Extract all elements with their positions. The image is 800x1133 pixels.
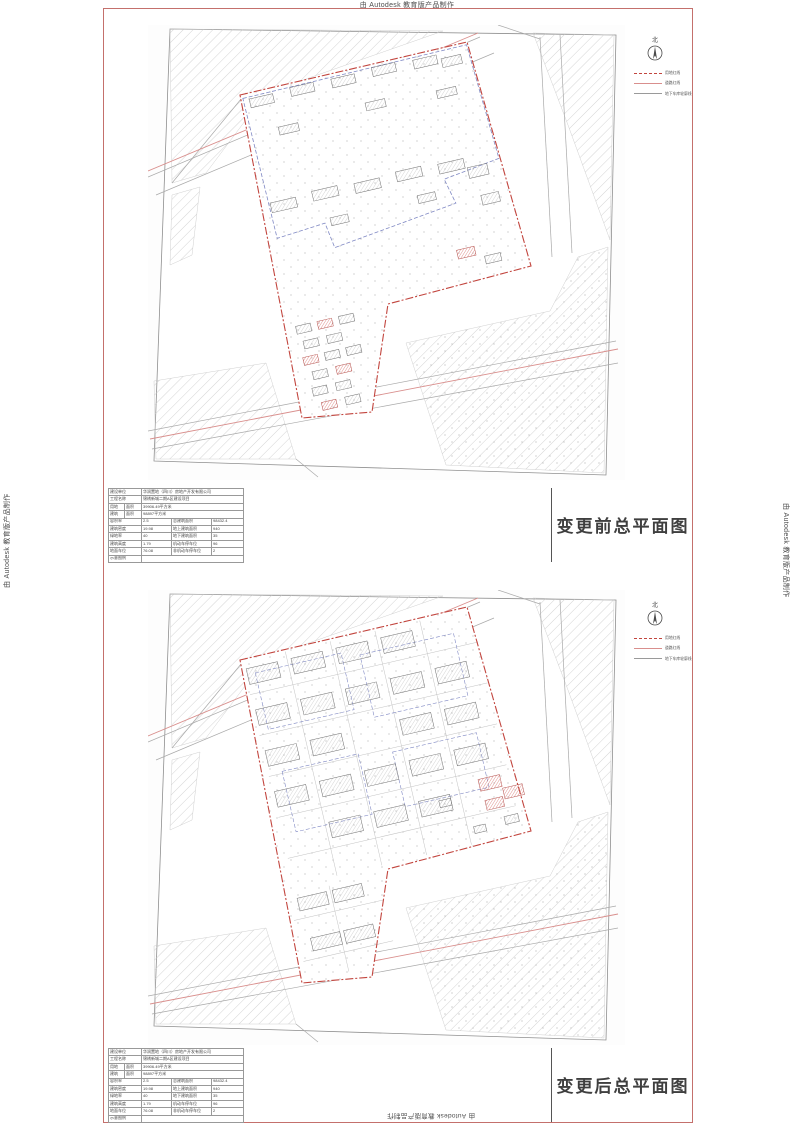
legend-item-site-redline: 用地红线 [634,68,694,78]
autodesk-watermark-top: 由 Autodesk 教育版产品制作 [350,0,464,10]
titleblock-cell: 总建筑面积 [172,1078,212,1085]
autodesk-watermark-right: 由 Autodesk 教育版产品制作 [781,503,791,615]
titleblock-cell: 建设单位 [109,489,142,496]
titleblock-cell: 98432.4 [212,518,244,525]
titleblock-cell: 2 [212,548,244,555]
titleblock-cell: 用地 [109,1063,125,1070]
titleblock-cell: 地下建筑面积 [172,1093,212,1100]
titleblock-table-after: 建设单位华润置地（四川）房地产开发有限公司工程名称锦绣新城二期A区建设项目用地面… [108,1048,244,1123]
titleblock-cell: 2 [212,1108,244,1115]
titleblock-cell: 地面车位 [109,548,142,555]
titleblock-cell: 示意图例 [109,555,142,562]
titleblock-cell: 工程名称 [109,1056,142,1063]
titleblock-cell: 地上建筑面积 [172,525,212,532]
titleblock-cell: 华润置地（四川）房地产开发有限公司 [142,489,244,496]
titleblock-cell: 98897平方米 [142,511,244,518]
titleblock-cell: 非机动车停车位 [172,548,212,555]
titleblock-cell: 96 [212,540,244,547]
titleblock-cell: 76.08 [142,1108,172,1115]
legend-label: 地下车库轮廓线 [665,91,692,97]
titleblock-cell: 机动车停车位 [172,540,212,547]
titleblock-cell: 机动车停车位 [172,1100,212,1107]
titleblock-cell: 用地 [109,503,125,510]
titleblock-cell: 35 [212,533,244,540]
titleblock-cell: 建筑密度 [109,1085,142,1092]
legend-label: 道路红线 [665,646,680,652]
titleblock-cell: 面积 [125,1063,142,1070]
titleblock-cell: 非机动车停车位 [172,1108,212,1115]
titleblock-cell: 地上建筑面积 [172,1085,212,1092]
sheet-title-after: 变更后总平面图 [556,1056,690,1112]
legend-item-road-redline: 道路红线 [634,643,694,653]
titleblock-cell: 面积 [125,511,142,518]
titleblock-cell: 容积率 [109,1078,142,1085]
titleblock-cell: 容积率 [109,518,142,525]
legend-label: 用地红线 [665,635,680,641]
sheet-title-text: 变更前总平面图 [557,512,690,537]
titleblock-divider [551,488,552,562]
titleblock-table-before: 建设单位华润置地（四川）房地产开发有限公司工程名称锦绣新城二期A区建设项目用地面… [108,488,244,563]
site-plan-before [148,25,625,480]
titleblock-cell: 总建筑面积 [172,518,212,525]
titleblock-cell: 98897平方米 [142,1071,244,1078]
titleblock-cell: 39906.49平方米 [142,503,244,510]
titleblock-cell: 76.08 [142,548,172,555]
solid-red-line-swatch [634,83,662,84]
dashed-red-line-swatch [634,73,662,74]
north-arrow-icon [647,610,663,626]
compass: 北 [644,603,666,631]
titleblock-cell: 40 [142,533,172,540]
north-arrow-icon [647,45,663,61]
legend-label: 用地红线 [665,70,680,76]
legend-item-garage-outline: 地下车库轮廓线 [634,654,694,664]
solid-red-line-swatch [634,648,662,649]
titleblock-cell: 华润置地（四川）房地产开发有限公司 [142,1049,244,1056]
titleblock-cell: 锦绣新城二期A区建设项目 [142,1056,244,1063]
autodesk-watermark-bottom: 由 Autodesk 教育版产品制作 [381,1112,481,1122]
autodesk-watermark-left: 由 Autodesk 教育版产品制作 [2,476,12,588]
titleblock-cell: 2.5 [142,1078,172,1085]
titleblock-cell: 40 [142,1093,172,1100]
titleblock-cell: 940 [212,1085,244,1092]
titleblock-divider [551,1048,552,1122]
titleblock-cell: 面积 [125,1071,142,1078]
titleblock-cell: 建筑高度 [109,1100,142,1107]
sheet-title-text: 变更后总平面图 [557,1072,690,1097]
titleblock-cell: 39906.49平方米 [142,1063,244,1070]
compass: 北 [644,38,666,66]
north-label: 北 [644,38,666,45]
legend: 用地红线 道路红线 地下车库轮廓线 [634,633,694,664]
titleblock-cell: 工程名称 [109,496,142,503]
titleblock-cell: 19.98 [142,1085,172,1092]
titleblock-cell: 96 [212,1100,244,1107]
titleblock-cell: 建设单位 [109,1049,142,1056]
titleblock-cell: 建筑 [109,1071,125,1078]
titleblock-cell: 面积 [125,503,142,510]
legend-item-garage-outline: 地下车库轮廓线 [634,89,694,99]
titleblock-cell: 绿地率 [109,533,142,540]
titleblock-cell: 建筑密度 [109,525,142,532]
solid-gray-line-swatch [634,658,662,659]
solid-gray-line-swatch [634,93,662,94]
titleblock-cell: 示意图例 [109,1115,142,1122]
titleblock-cell: 2.5 [142,518,172,525]
titleblock-cell: 地面车位 [109,1108,142,1115]
dashed-red-line-swatch [634,638,662,639]
north-label: 北 [644,603,666,610]
legend-item-site-redline: 用地红线 [634,633,694,643]
titleblock-cell: 建筑 [109,511,125,518]
titleblock-cell: 绿地率 [109,1093,142,1100]
titleblock-cell: 锦绣新城二期A区建设项目 [142,496,244,503]
legend-label: 地下车库轮廓线 [665,656,692,662]
titleblock-cell: 19.98 [142,525,172,532]
legend-item-road-redline: 道路红线 [634,78,694,88]
titleblock-cell [142,1115,244,1122]
sheet-title-before: 变更前总平面图 [556,496,690,552]
titleblock-cell: 98432.4 [212,1078,244,1085]
titleblock-cell: 940 [212,525,244,532]
titleblock-cell: 35 [212,1093,244,1100]
legend: 用地红线 道路红线 地下车库轮廓线 [634,68,694,99]
titleblock-cell: 1.79 [142,1100,172,1107]
titleblock-cell: 地下建筑面积 [172,533,212,540]
titleblock-cell: 1.79 [142,540,172,547]
legend-label: 道路红线 [665,81,680,87]
titleblock-cell: 建筑高度 [109,540,142,547]
titleblock-cell [142,555,244,562]
site-plan-after [148,590,625,1045]
